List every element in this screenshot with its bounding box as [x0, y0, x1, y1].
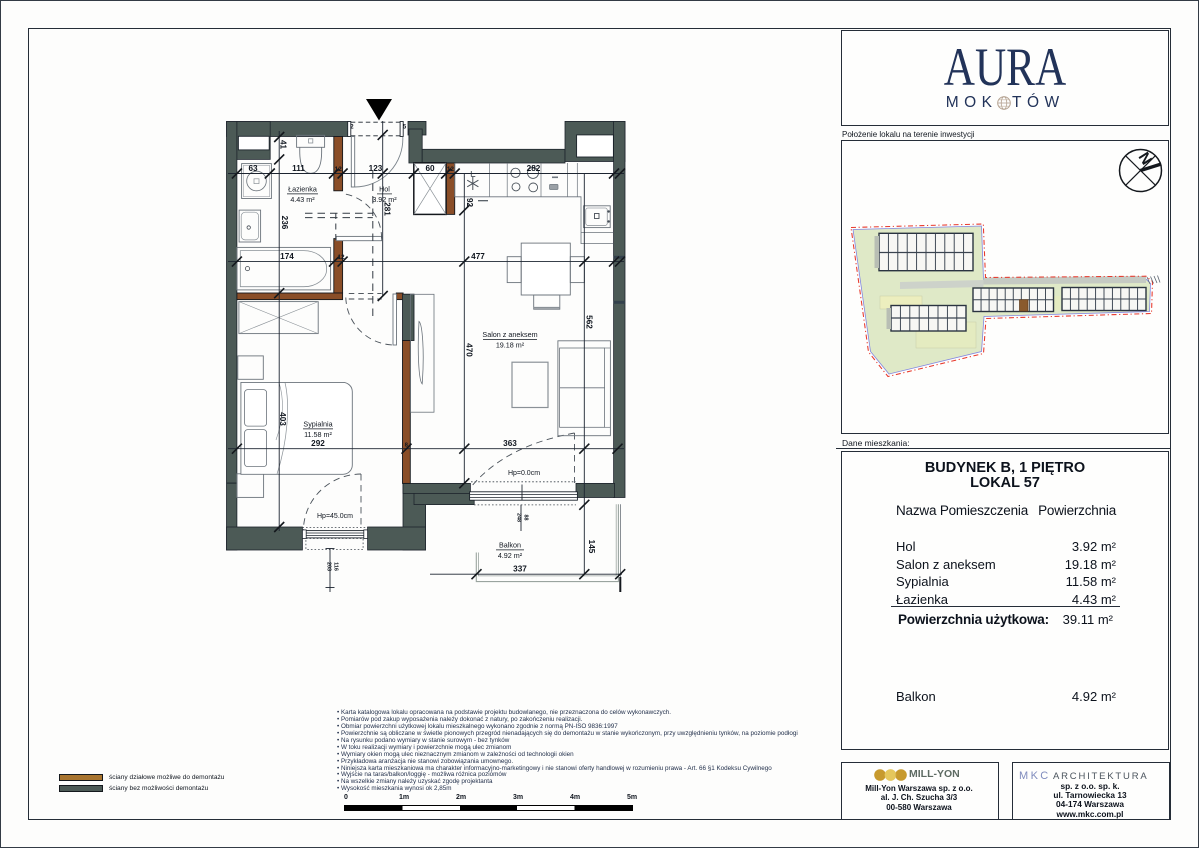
svg-text:11.58 m²: 11.58 m² [304, 430, 332, 439]
svg-text:123: 123 [369, 164, 383, 173]
svg-text:145: 145 [587, 540, 596, 554]
svg-text:337: 337 [513, 564, 527, 573]
svg-text:Hp=45.0cm: Hp=45.0cm [317, 513, 353, 520]
svg-text:2: 2 [350, 124, 354, 130]
svg-text:403: 403 [278, 412, 287, 426]
svg-text:4.43 m²: 4.43 m² [290, 195, 315, 204]
svg-text:Hol: Hol [379, 185, 390, 194]
svg-text:116: 116 [333, 562, 339, 571]
svg-text:111: 111 [292, 164, 305, 173]
svg-text:12: 12 [447, 166, 455, 173]
svg-text:Balkon: Balkon [499, 541, 521, 550]
svg-text:41: 41 [279, 140, 288, 150]
svg-text:477: 477 [471, 252, 485, 261]
svg-text:470: 470 [464, 343, 473, 357]
svg-text:Sypialnia: Sypialnia [303, 420, 332, 429]
svg-text:203: 203 [326, 562, 332, 571]
svg-text:12: 12 [337, 254, 345, 261]
svg-text:4.92 m²: 4.92 m² [498, 551, 523, 560]
svg-text:63: 63 [248, 164, 258, 173]
svg-text:Salon z aneksem: Salon z aneksem [482, 330, 537, 339]
svg-text:562: 562 [584, 315, 593, 329]
svg-text:281: 281 [382, 202, 391, 216]
svg-text:5: 5 [403, 124, 407, 130]
svg-text:Hp=0.0cm: Hp=0.0cm [508, 470, 540, 477]
svg-text:248: 248 [516, 513, 522, 522]
svg-text:12: 12 [335, 166, 343, 173]
svg-text:Łazienka: Łazienka [288, 185, 317, 194]
svg-text:236: 236 [280, 216, 289, 230]
svg-text:292: 292 [311, 439, 325, 448]
svg-text:3.92 m²: 3.92 m² [372, 195, 397, 204]
svg-text:282: 282 [527, 164, 541, 173]
svg-text:8: 8 [405, 442, 408, 448]
svg-text:363: 363 [503, 439, 517, 448]
svg-text:92: 92 [465, 198, 474, 208]
svg-text:88: 88 [523, 515, 529, 521]
svg-text:174: 174 [280, 252, 294, 261]
svg-text:19.18 m²: 19.18 m² [496, 340, 525, 349]
svg-text:60: 60 [425, 164, 435, 173]
